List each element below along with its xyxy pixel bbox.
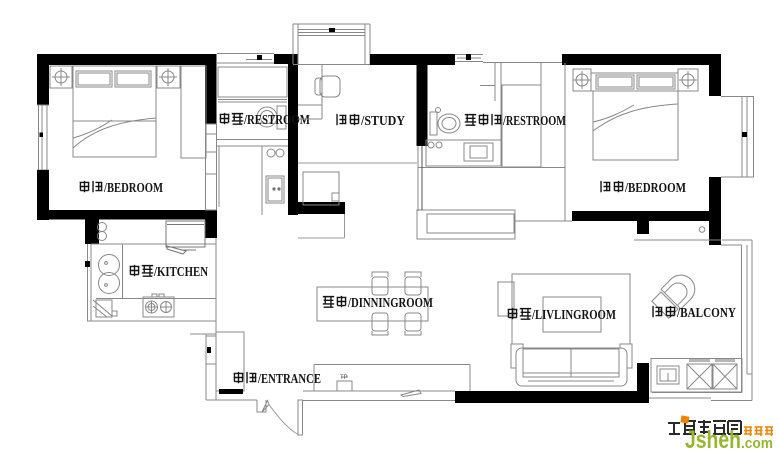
svg-text:/DINNINGROOM: /DINNINGROOM xyxy=(347,296,433,311)
svg-text:TP: TP xyxy=(340,375,348,381)
svg-text:/LIVLINGROOM: /LIVLINGROOM xyxy=(531,308,616,323)
svg-text:/BALCONY: /BALCONY xyxy=(676,306,736,321)
svg-text:/BEDROOM: /BEDROOM xyxy=(103,181,163,196)
svg-text:/RESTROOM: /RESTROOM xyxy=(502,114,566,129)
svg-text:.com: .com xyxy=(741,435,773,449)
svg-text:/RESTROOM: /RESTROOM xyxy=(243,113,310,128)
svg-text:/BEDROOM: /BEDROOM xyxy=(624,181,686,196)
svg-text:/KITCHEN: /KITCHEN xyxy=(153,265,208,280)
svg-text:/ENTRANCE: /ENTRANCE xyxy=(257,372,321,387)
svg-text:Jsheh: Jsheh xyxy=(685,426,741,449)
svg-text:/STUDY: /STUDY xyxy=(360,114,405,129)
